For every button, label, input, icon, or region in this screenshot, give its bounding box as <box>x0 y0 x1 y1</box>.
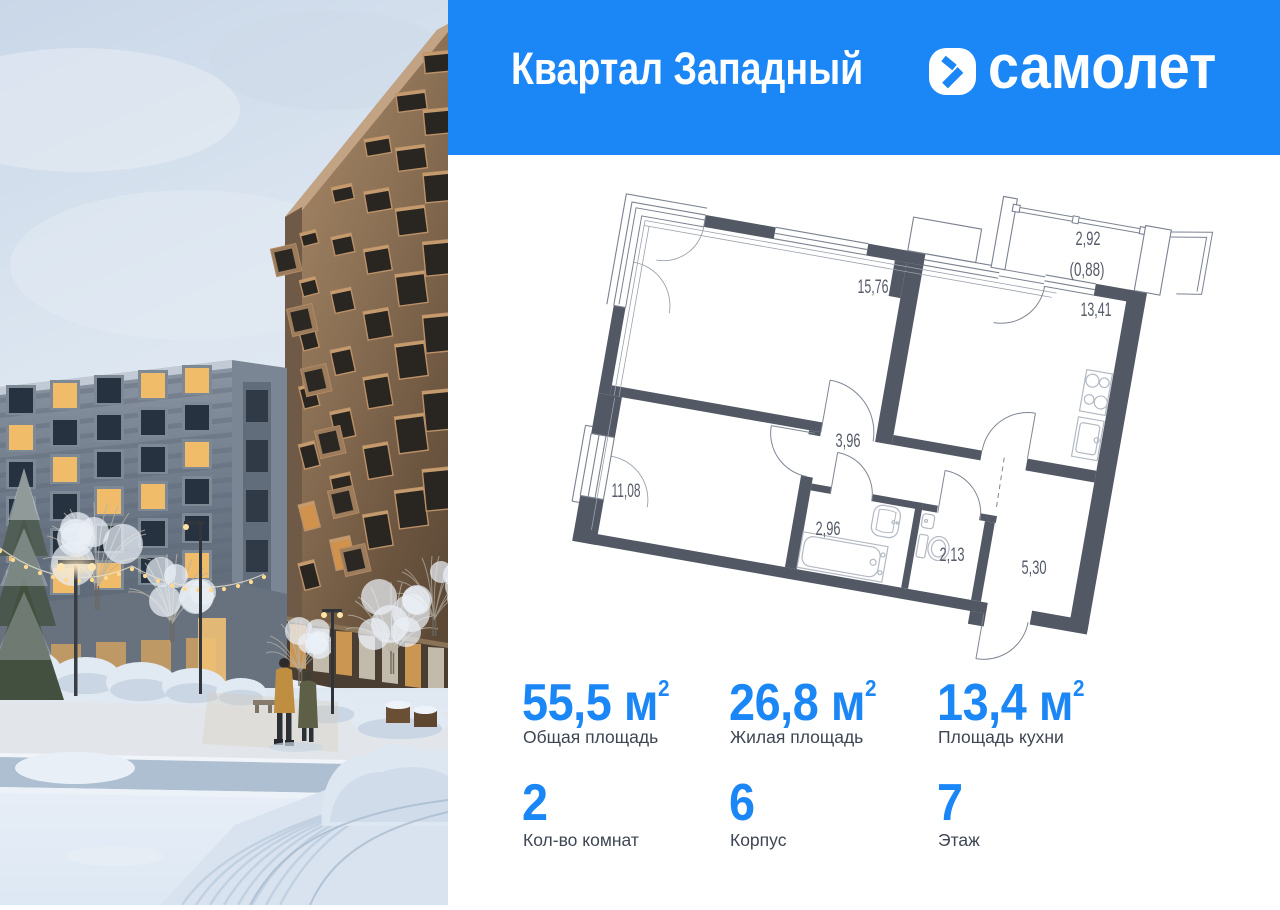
svg-text:2,92: 2,92 <box>1076 229 1101 250</box>
svg-text:2,96: 2,96 <box>816 519 841 540</box>
svg-text:5,30: 5,30 <box>1022 558 1047 579</box>
svg-text:13,41: 13,41 <box>1081 300 1112 321</box>
svg-text:(0,88): (0,88) <box>1070 260 1105 281</box>
svg-text:3,96: 3,96 <box>836 431 861 452</box>
svg-text:15,76: 15,76 <box>858 277 889 298</box>
svg-text:2,13: 2,13 <box>940 545 965 566</box>
svg-text:11,08: 11,08 <box>612 481 641 502</box>
svg-text:самолет: самолет <box>988 48 1216 100</box>
